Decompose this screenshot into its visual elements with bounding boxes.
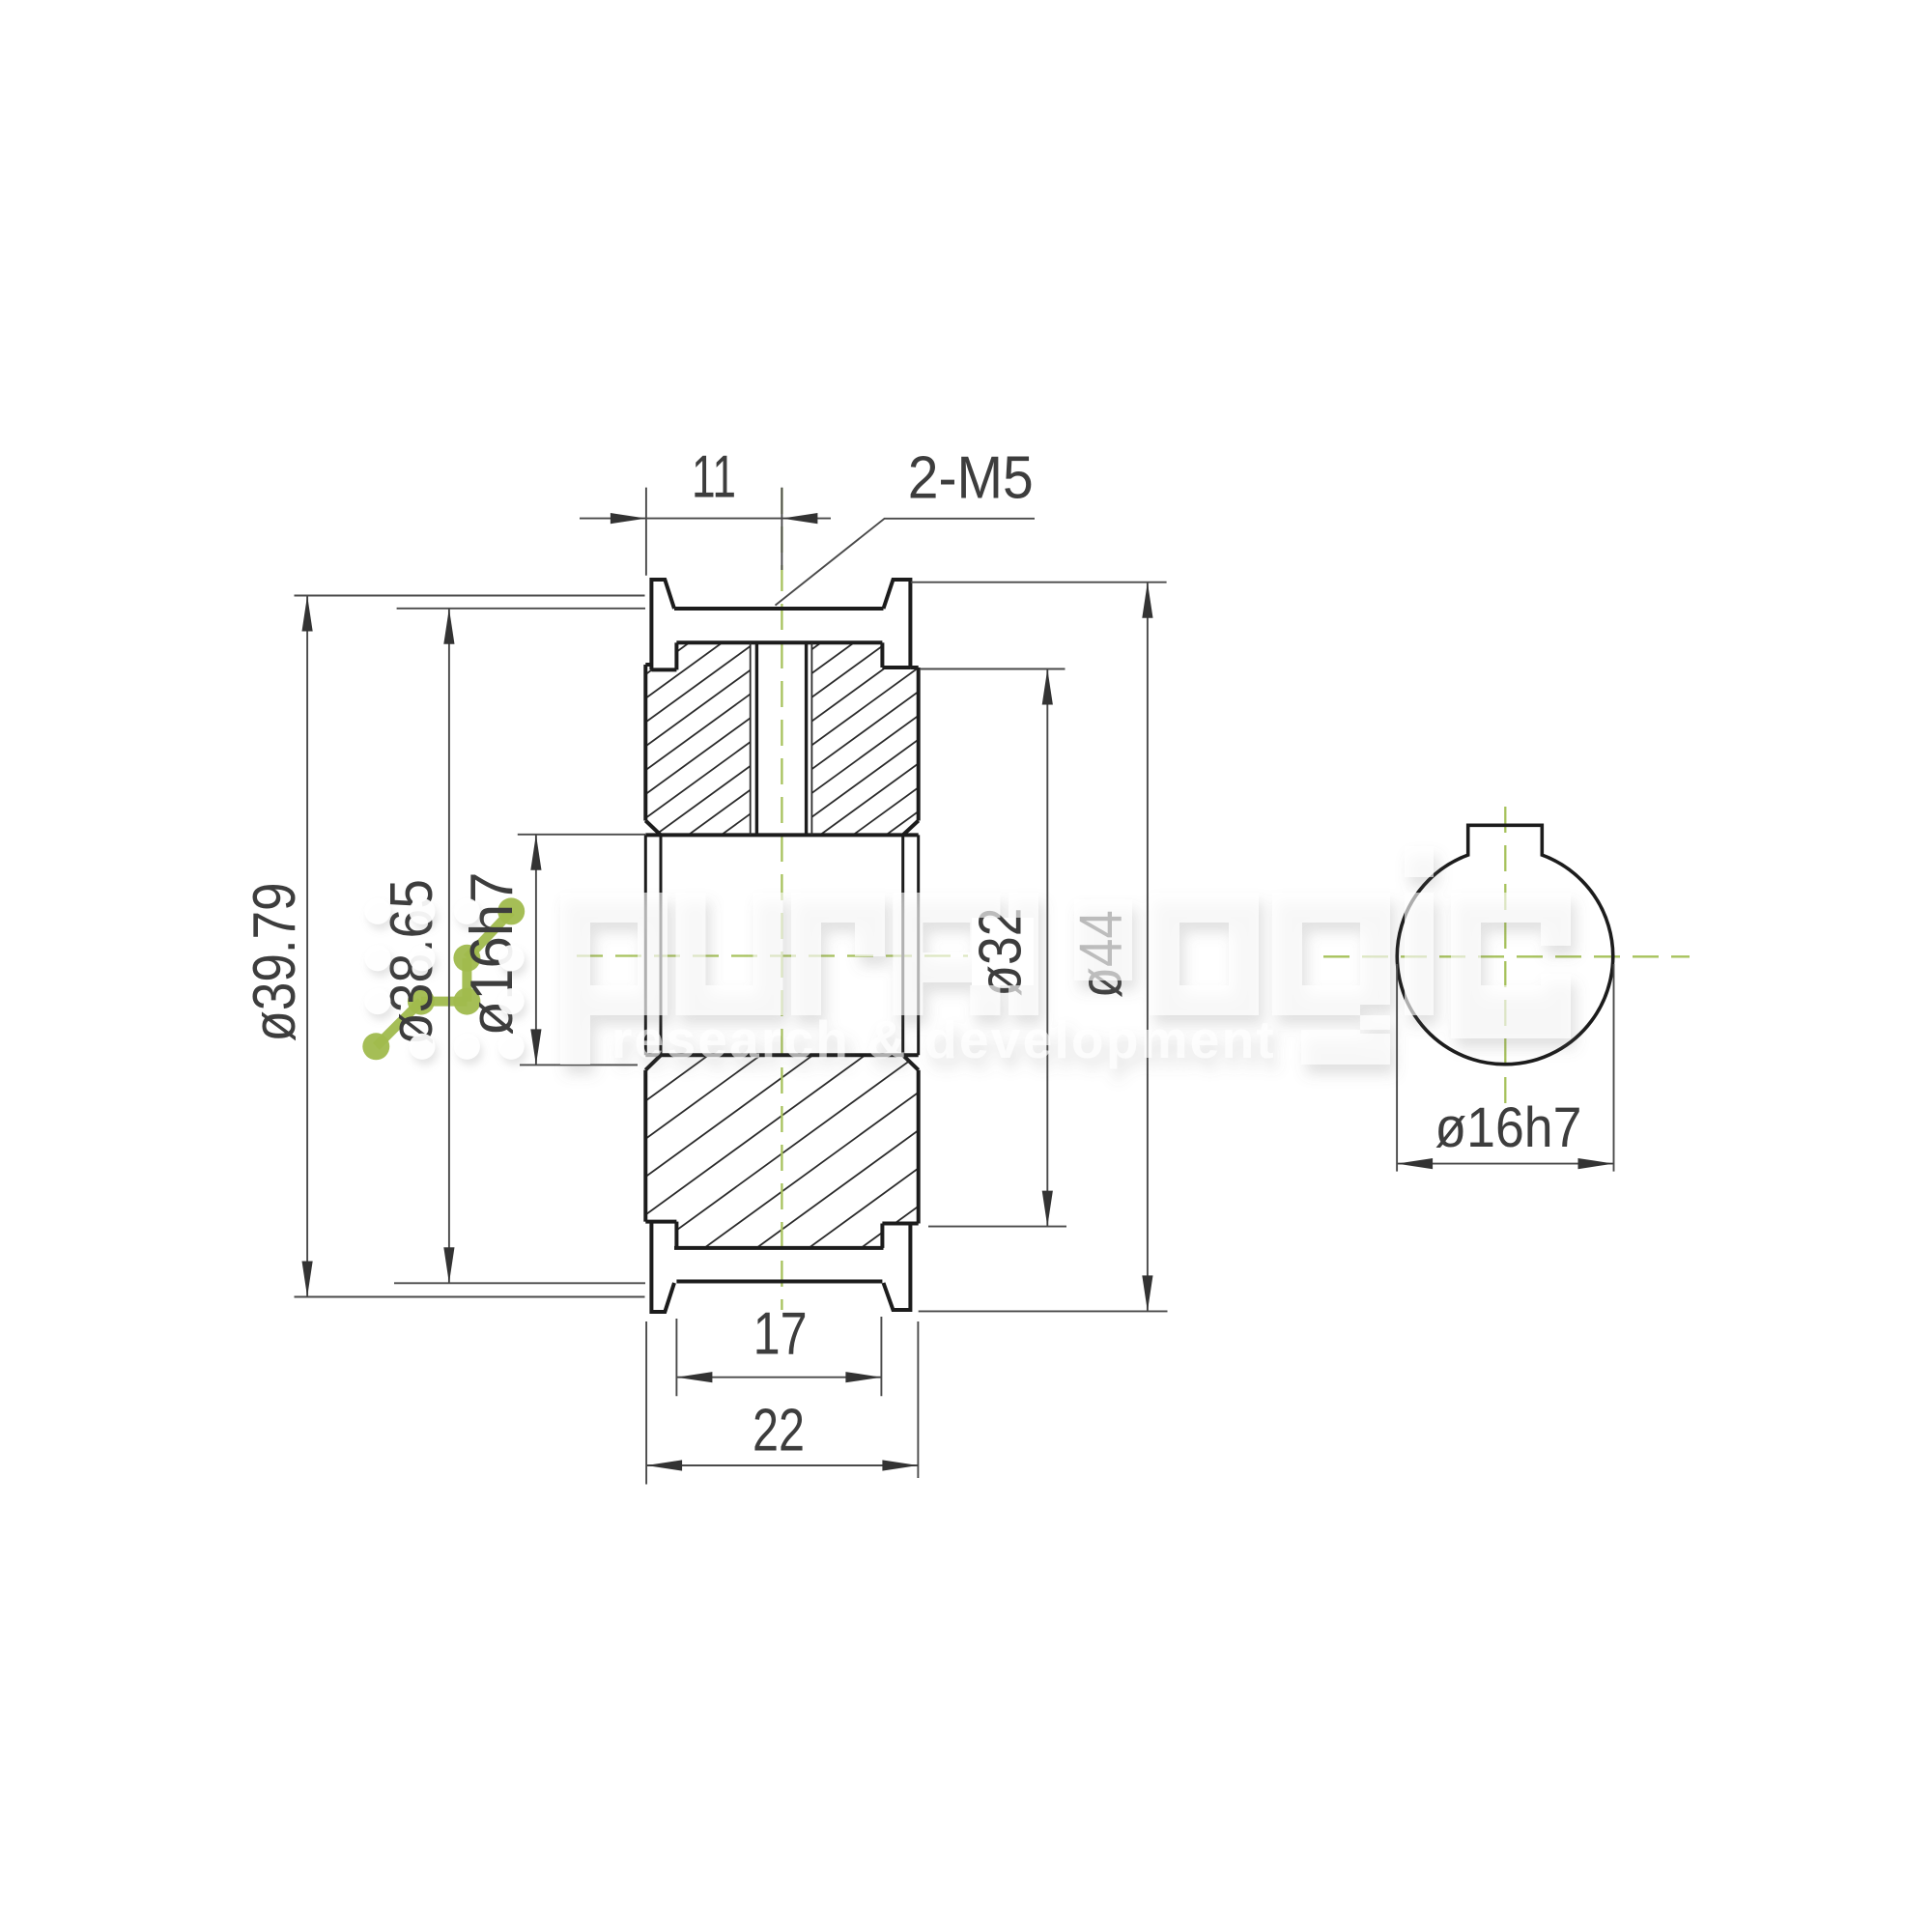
svg-text:research & development: research & development (611, 1009, 1276, 1069)
svg-text:17: 17 (753, 1301, 808, 1368)
svg-text:ø39.79: ø39.79 (241, 883, 308, 1042)
svg-text:11: 11 (692, 444, 736, 511)
svg-text:ø16h7: ø16h7 (1435, 1096, 1581, 1159)
svg-text:22: 22 (753, 1398, 805, 1464)
svg-text:ø32: ø32 (968, 908, 1035, 997)
svg-text:2-M5: 2-M5 (908, 445, 1034, 512)
